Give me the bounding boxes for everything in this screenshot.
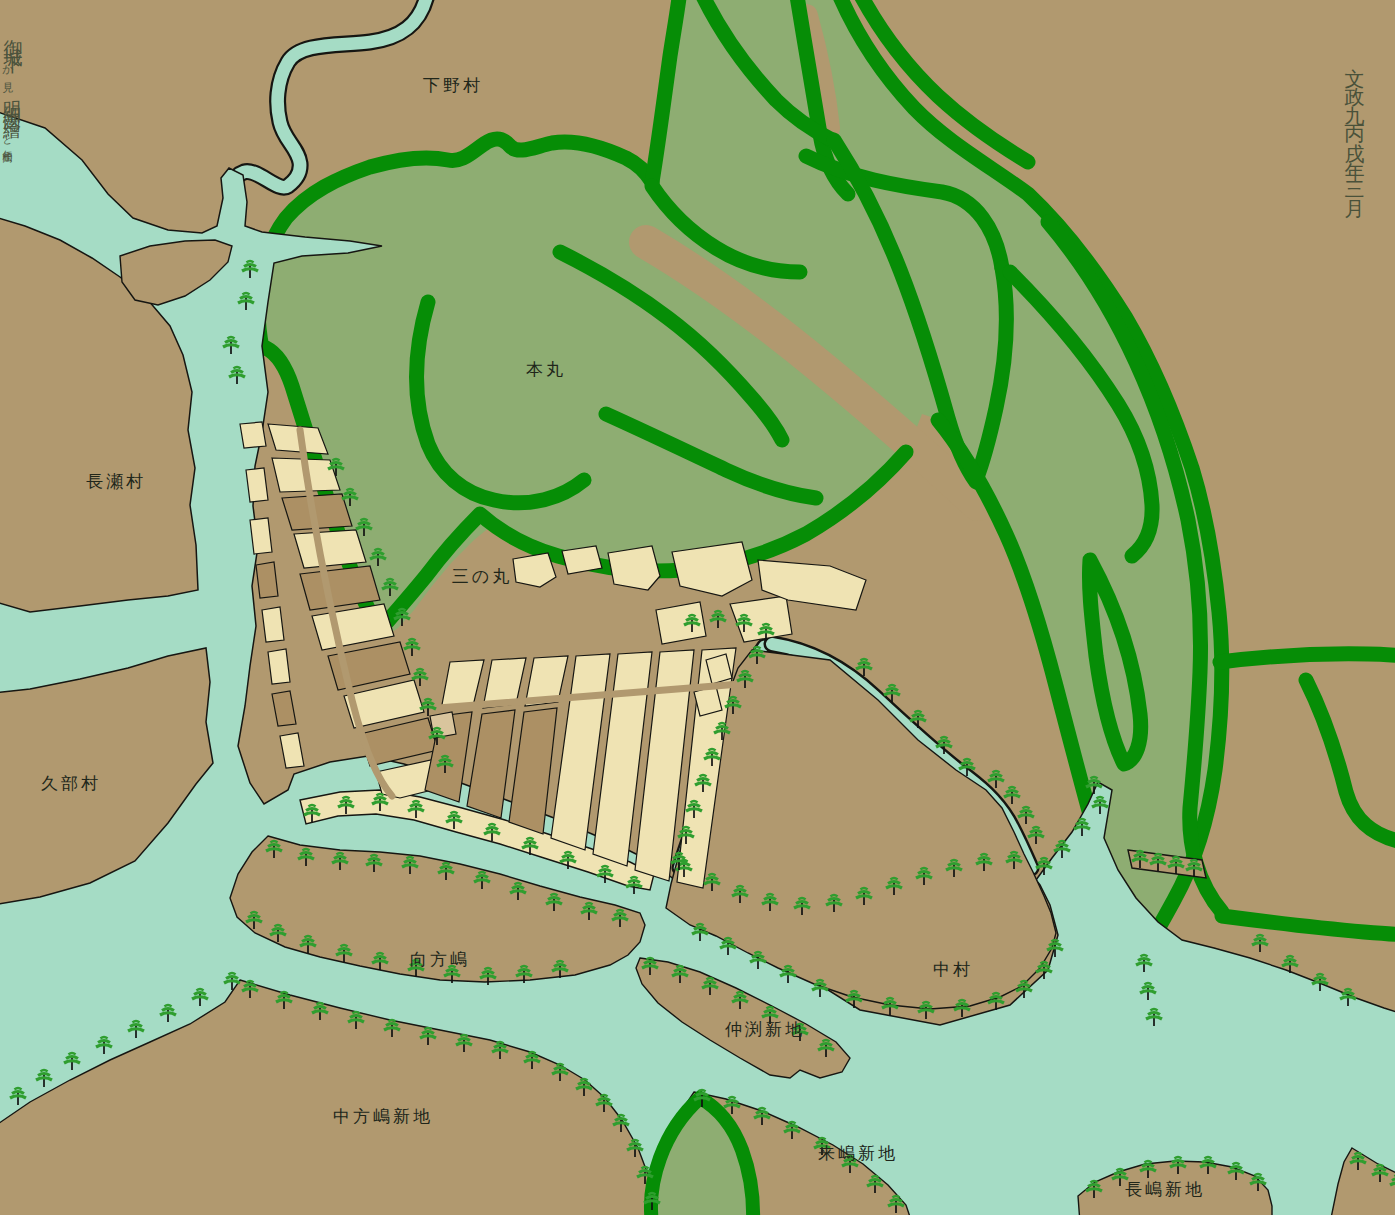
town-block [246,468,268,502]
town-block [250,518,272,554]
map-canvas [0,0,1395,1215]
historical-castle-town-map: 下野村 長瀬村 久部村 本丸 三の丸 向方嶋 中村 仲渕新地 中方嶋新地 来嶋新… [0,0,1395,1215]
town-block [256,562,278,598]
inscription-title-note: か見 [0,57,15,78]
inscription-signature: と年桧間 [0,127,14,147]
label-mukaikatajima: 向方嶋 [410,948,470,971]
label-sannomaru: 三の丸 [452,565,512,588]
label-nakabuchi-shinchi: 仲渕新地 [725,1018,805,1041]
town-block [294,530,366,568]
inscription-title-lower: 明細圖繪 [0,85,24,114]
town-block [268,649,290,684]
label-nagase-mura: 長瀬村 [86,470,146,493]
label-nakakatajima-shinchi: 中方嶋新地 [333,1105,433,1128]
town-block [430,712,456,738]
town-block [608,546,660,590]
town-block [240,422,266,448]
label-nakamura: 中村 [933,958,973,981]
town-block [262,607,284,642]
label-honmaru: 本丸 [526,358,566,381]
label-nagashima-shinchi: 長嶋新地 [1125,1178,1205,1201]
label-kurushima-shinchi: 来嶋新地 [818,1142,898,1165]
inscription-title-upper: 御城下 [0,23,26,51]
label-kube-mura: 久部村 [41,772,101,795]
